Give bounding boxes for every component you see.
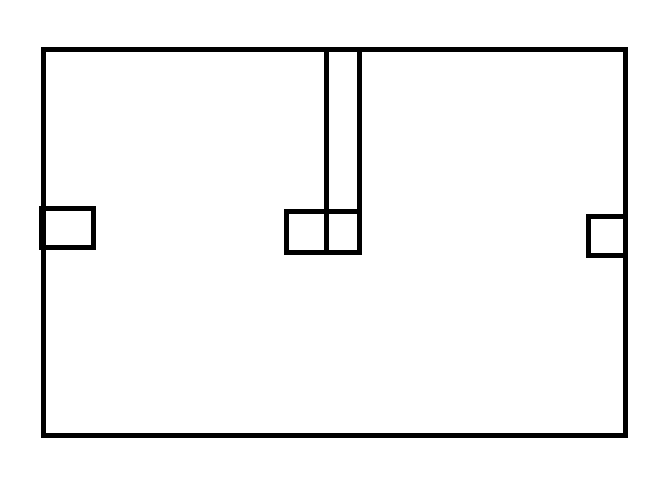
floor-plan-diagram [0, 0, 667, 480]
center-box [287, 212, 360, 253]
outer-wall-rectangle [44, 50, 626, 436]
left-wall-box [42, 209, 94, 248]
right-wall-box [589, 217, 626, 256]
diagram-page [0, 0, 667, 480]
